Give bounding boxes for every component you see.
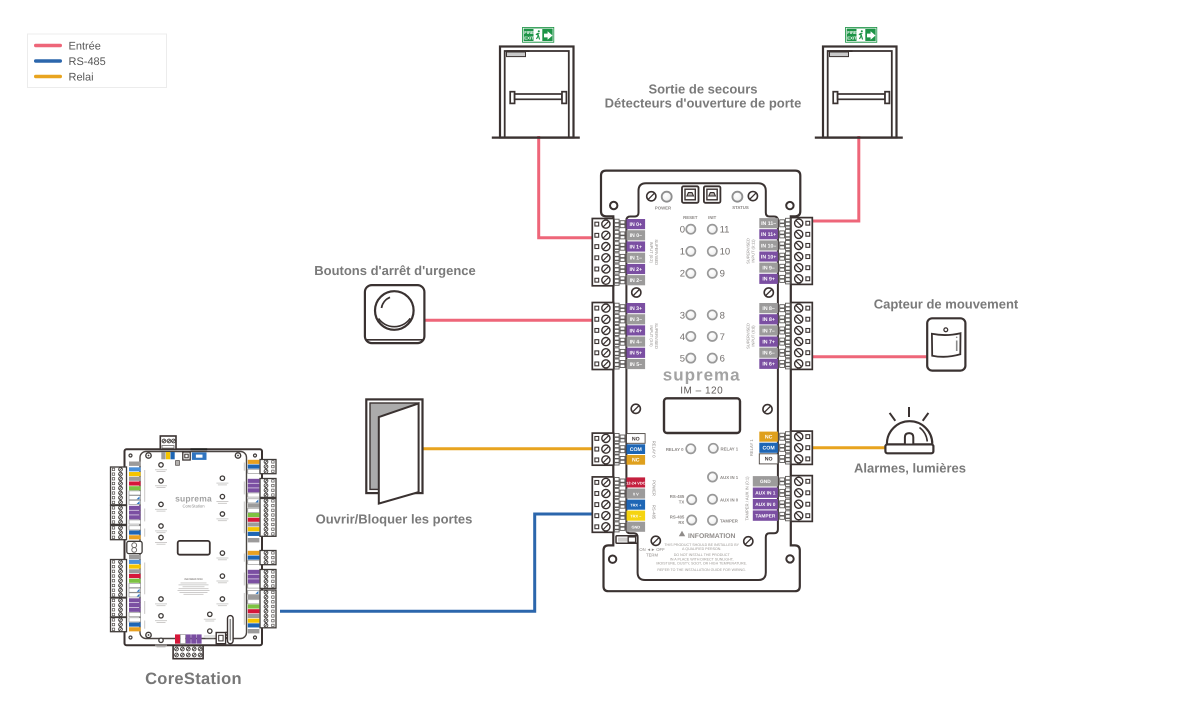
svg-text:IN 10–: IN 10–	[761, 243, 776, 249]
svg-text:IN 7+: IN 7+	[762, 339, 775, 345]
svg-text:NC: NC	[632, 458, 640, 464]
svg-text:0: 0	[680, 225, 685, 236]
svg-text:IN 6–: IN 6–	[762, 351, 775, 357]
svg-text:Boutons d'arrêt d'urgence: Boutons d'arrêt d'urgence	[314, 263, 475, 278]
svg-text:SUPERVISEDINPUT (0:2): SUPERVISEDINPUT (0:2)	[649, 239, 659, 265]
svg-text:IN 5–: IN 5–	[630, 362, 643, 368]
svg-text:CoreStation: CoreStation	[145, 670, 242, 688]
svg-text:RELAY 0: RELAY 0	[666, 447, 684, 452]
svg-text:AUX IN 1: AUX IN 1	[720, 475, 739, 480]
svg-text:RS-485: RS-485	[652, 505, 657, 520]
svg-text:MOISTURE, DUSTY, SOOT, OR HIGH: MOISTURE, DUSTY, SOOT, OR HIGH TEMPERATU…	[656, 562, 747, 566]
svg-text:12-24 VDC: 12-24 VDC	[626, 480, 645, 485]
svg-text:STATUS: STATUS	[732, 205, 749, 210]
svg-text:Sortie de secours: Sortie de secours	[648, 82, 757, 97]
svg-text:Ouvrir/Bloquer les portes: Ouvrir/Bloquer les portes	[316, 512, 473, 527]
svg-text:TAMPER: TAMPER	[720, 519, 739, 524]
svg-text:RELAY 0: RELAY 0	[652, 441, 657, 459]
svg-text:Capteur de mouvement: Capteur de mouvement	[874, 297, 1019, 312]
svg-text:SUPERVISEDINPUT (3:5): SUPERVISEDINPUT (3:5)	[649, 323, 659, 349]
svg-text:IN 8+: IN 8+	[762, 317, 775, 323]
svg-text:IN 0–: IN 0–	[630, 233, 643, 239]
svg-text:4: 4	[680, 332, 685, 343]
svg-text:RS-485: RS-485	[670, 494, 685, 499]
svg-text:EXIT: EXIT	[524, 36, 534, 41]
svg-text:RESET: RESET	[683, 215, 698, 220]
svg-text:GND: GND	[631, 525, 640, 530]
svg-text:Relai: Relai	[69, 72, 94, 84]
svg-text:NC: NC	[765, 435, 773, 441]
svg-text:8: 8	[720, 310, 725, 321]
svg-text:RS-485: RS-485	[69, 56, 106, 68]
svg-text:IN 9–: IN 9–	[762, 266, 775, 272]
svg-text:EXIT: EXIT	[847, 36, 857, 41]
svg-text:1: 1	[680, 247, 685, 258]
svg-text:IM – 120: IM – 120	[680, 386, 723, 397]
svg-text:Détecteurs d'ouverture de port: Détecteurs d'ouverture de porte	[605, 96, 802, 111]
svg-text:IN 1–: IN 1–	[630, 256, 643, 262]
svg-text:IN 5+: IN 5+	[630, 351, 643, 357]
svg-text:INFORMATION: INFORMATION	[184, 578, 202, 581]
svg-text:RELAY 1: RELAY 1	[749, 439, 754, 457]
svg-text:POWER: POWER	[655, 206, 672, 211]
svg-text:NO: NO	[765, 457, 773, 463]
svg-text:5: 5	[680, 354, 685, 365]
svg-text:IN 4+: IN 4+	[630, 328, 643, 334]
svg-text:IN 9+: IN 9+	[762, 277, 775, 283]
svg-text:IN 7–: IN 7–	[762, 328, 775, 334]
svg-text:TAMPER / AUX IN (0:1): TAMPER / AUX IN (0:1)	[745, 476, 750, 521]
svg-text:COM: COM	[763, 446, 775, 452]
svg-text:Entrée: Entrée	[69, 41, 101, 53]
svg-text:RS-485: RS-485	[670, 514, 685, 519]
svg-text:GND: GND	[760, 479, 771, 485]
svg-text:IN 2–: IN 2–	[630, 278, 643, 284]
svg-text:IN 11–: IN 11–	[761, 221, 776, 227]
svg-text:IN 4–: IN 4–	[630, 340, 643, 346]
svg-text:TRX +: TRX +	[630, 503, 642, 508]
svg-text:COM: COM	[630, 447, 642, 453]
svg-text:IN 1+: IN 1+	[630, 244, 643, 250]
svg-text:3: 3	[680, 310, 685, 321]
svg-text:AUX IN 0: AUX IN 0	[720, 497, 739, 502]
svg-text:POWER: POWER	[652, 480, 657, 496]
svg-text:7: 7	[720, 332, 725, 343]
svg-text:FIRE: FIRE	[524, 30, 534, 35]
svg-text:Alarmes, lumières: Alarmes, lumières	[854, 461, 966, 476]
svg-text:INFORMATION: INFORMATION	[688, 533, 736, 540]
svg-text:TX: TX	[679, 500, 685, 505]
svg-text:AUX IN 1: AUX IN 1	[755, 491, 776, 497]
svg-text:IN 2+: IN 2+	[630, 267, 643, 273]
svg-text:REFER TO THE INSTALLATION GUID: REFER TO THE INSTALLATION GUIDE FOR WIRI…	[657, 568, 746, 572]
svg-text:FIRE: FIRE	[847, 30, 857, 35]
svg-text:11: 11	[720, 225, 730, 236]
svg-text:suprema: suprema	[663, 366, 741, 385]
svg-text:CoreStation: CoreStation	[182, 504, 205, 509]
svg-text:IN 3–: IN 3–	[630, 317, 643, 323]
svg-text:IN 0+: IN 0+	[630, 222, 643, 228]
svg-text:RELAY 1: RELAY 1	[721, 447, 739, 452]
svg-text:TRX –: TRX –	[630, 514, 642, 519]
svg-text:6: 6	[720, 354, 725, 365]
svg-text:IN 3+: IN 3+	[630, 306, 643, 312]
svg-text:TERM: TERM	[646, 553, 658, 558]
svg-text:NO: NO	[632, 436, 640, 442]
svg-text:suprema: suprema	[175, 494, 212, 504]
svg-text:A QUALIFIED PERSON.: A QUALIFIED PERSON.	[682, 547, 721, 551]
svg-text:RX: RX	[678, 520, 684, 525]
svg-text:SUPERVISEDINPUT (9:11): SUPERVISEDINPUT (9:11)	[745, 238, 755, 264]
svg-text:ON ◄► OFF: ON ◄► OFF	[639, 547, 665, 552]
svg-text:10: 10	[720, 247, 731, 258]
svg-text:2: 2	[680, 269, 685, 280]
svg-text:IN 8–: IN 8–	[762, 306, 775, 312]
svg-text:IN 10+: IN 10+	[761, 255, 776, 261]
svg-text:AUX IN 0: AUX IN 0	[755, 502, 776, 508]
svg-text:9: 9	[720, 269, 725, 280]
svg-text:IN 11+: IN 11+	[761, 232, 776, 238]
svg-text:INIT: INIT	[708, 215, 716, 220]
svg-text:IN 6+: IN 6+	[762, 362, 775, 368]
svg-text:0 V: 0 V	[633, 491, 639, 496]
svg-text:TAMPER: TAMPER	[755, 514, 775, 520]
svg-text:SUPERVISEDINPUT (6:8): SUPERVISEDINPUT (6:8)	[745, 323, 755, 349]
